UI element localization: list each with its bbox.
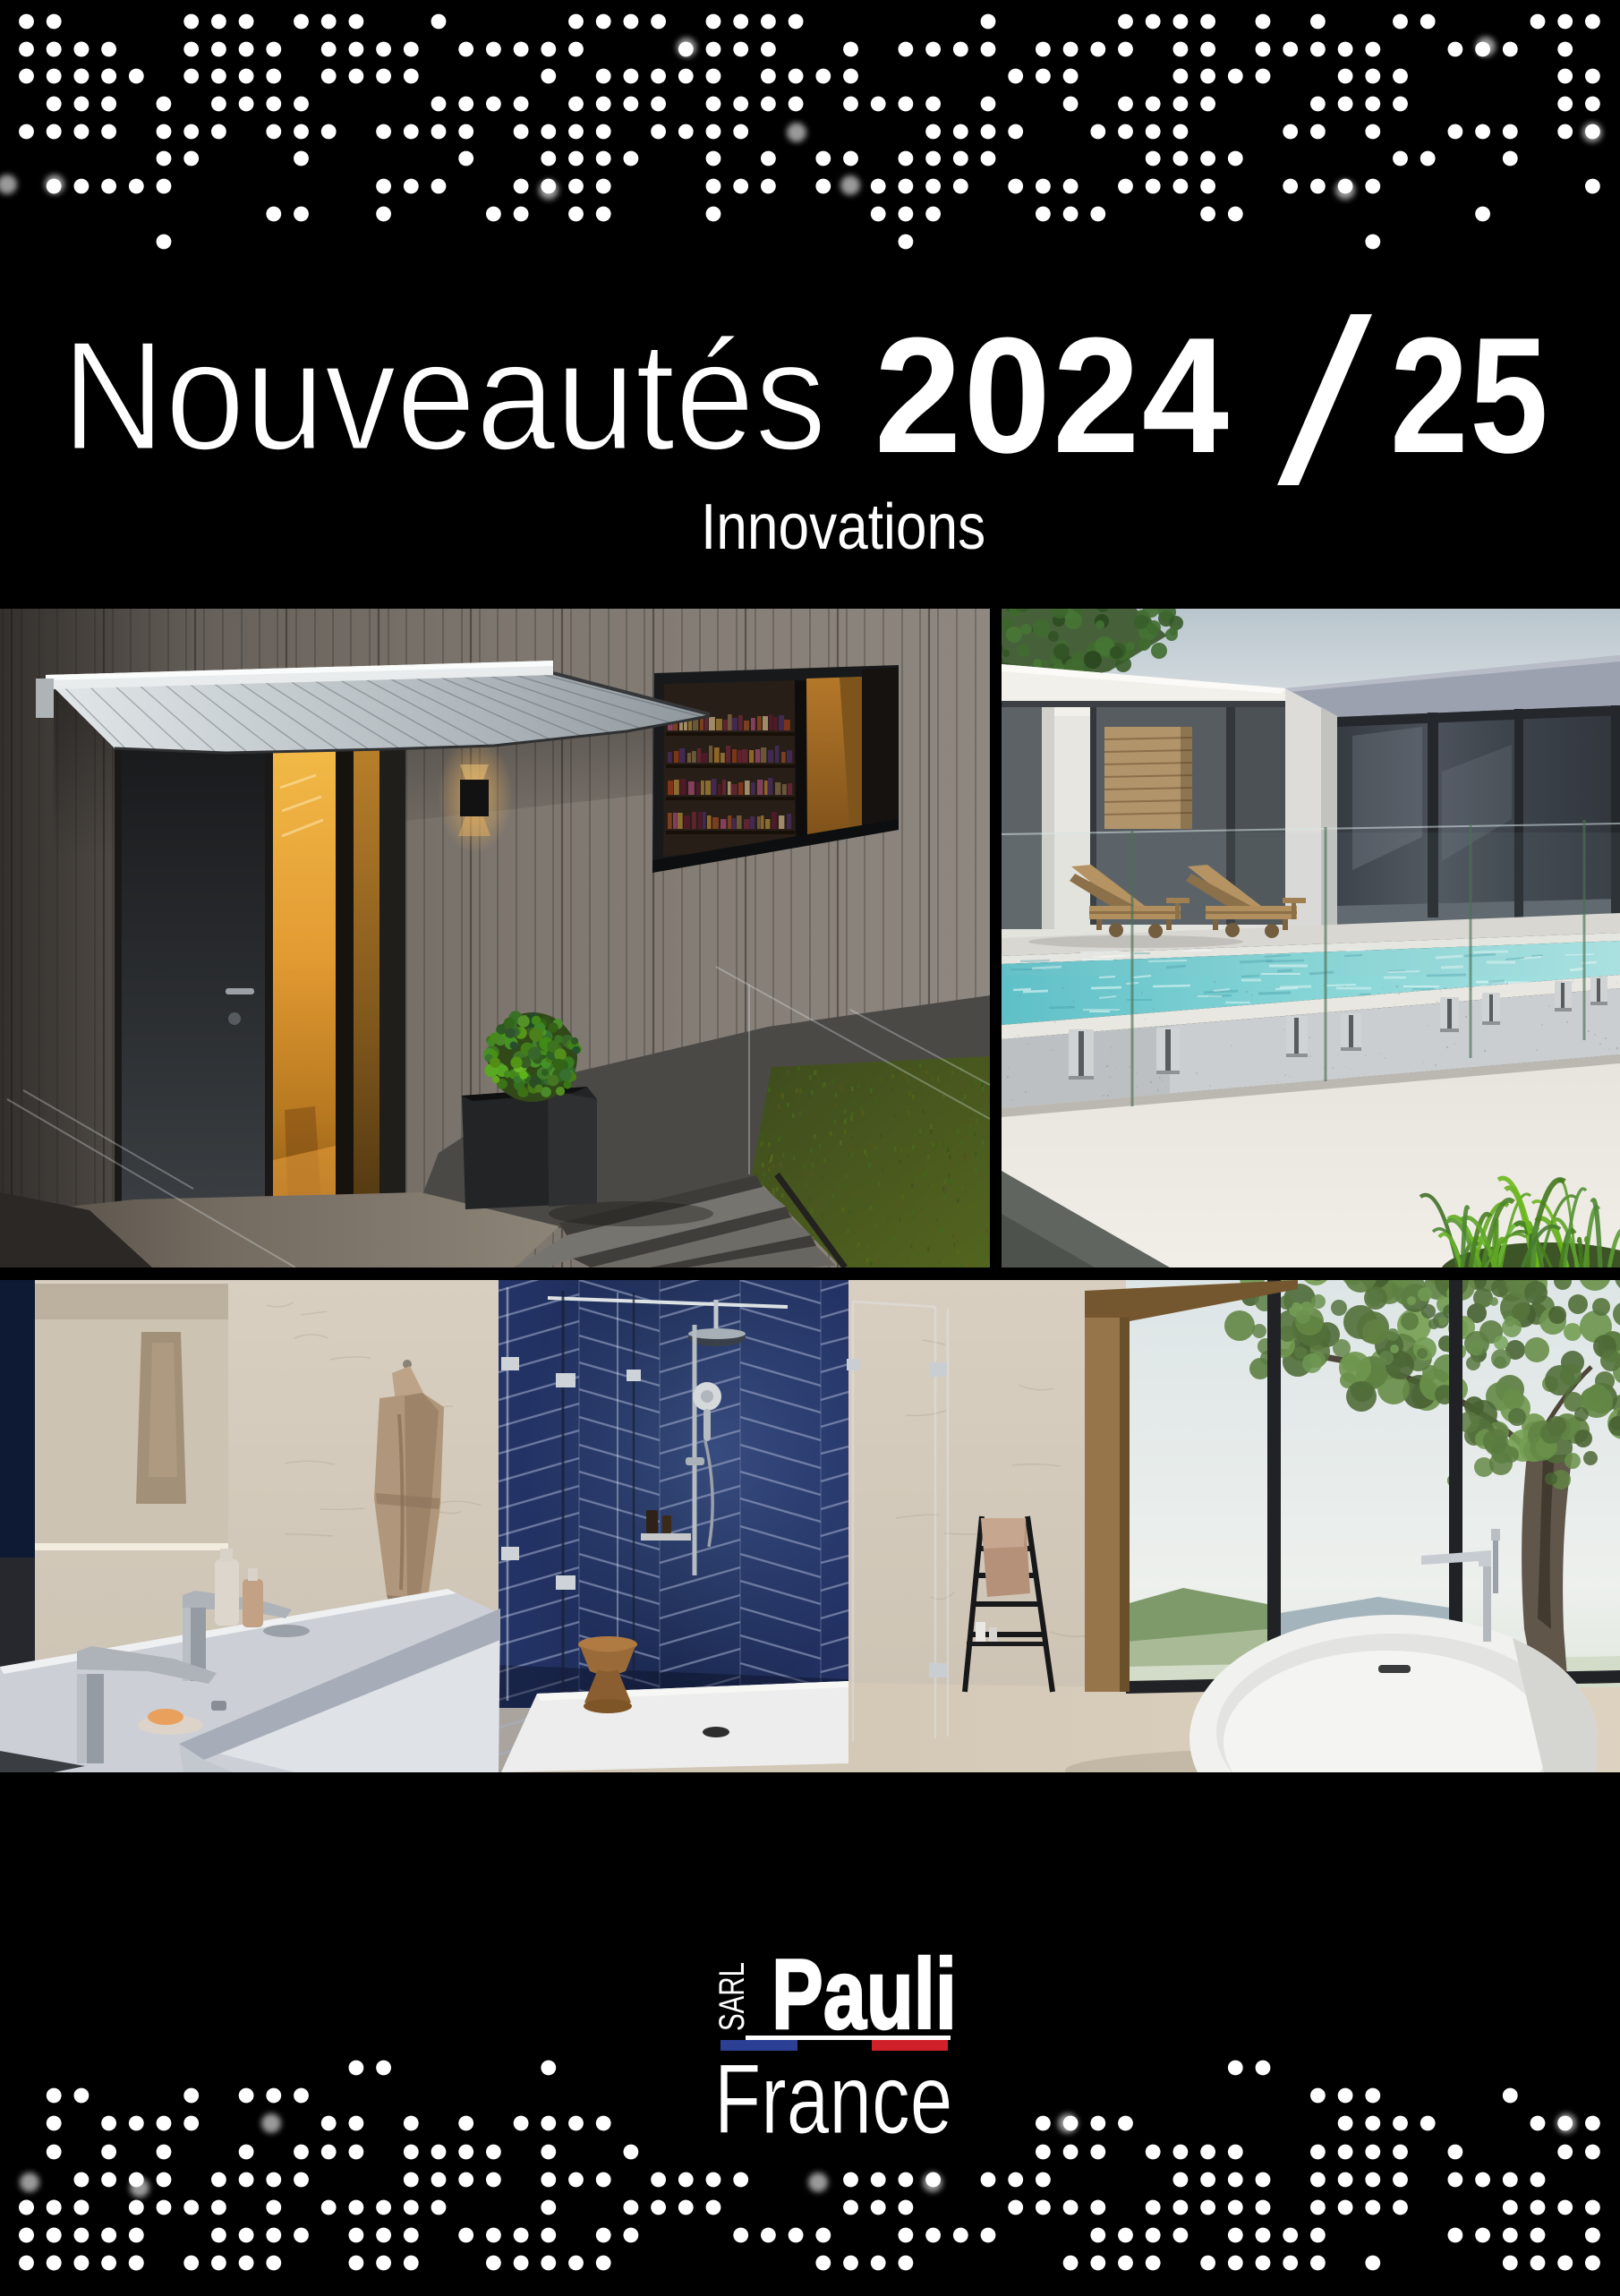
svg-text:SARL: SARL [719,1962,752,2031]
